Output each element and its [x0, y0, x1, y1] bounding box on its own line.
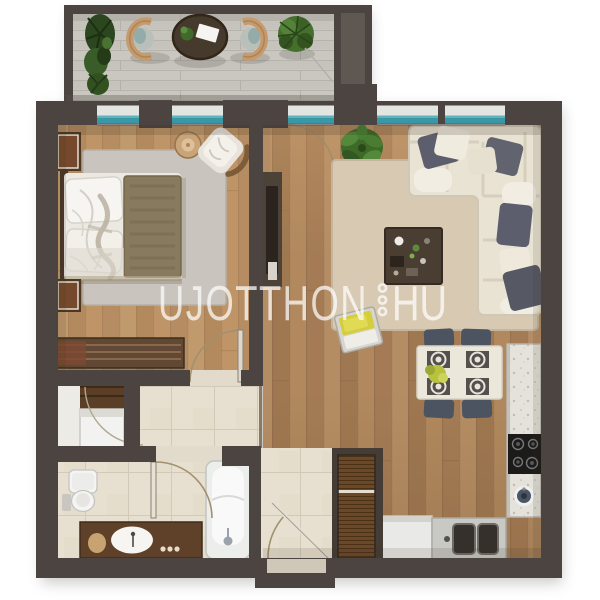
svg-text:UJOTTHON: UJOTTHON — [158, 277, 368, 331]
svg-text:HU: HU — [392, 277, 447, 331]
